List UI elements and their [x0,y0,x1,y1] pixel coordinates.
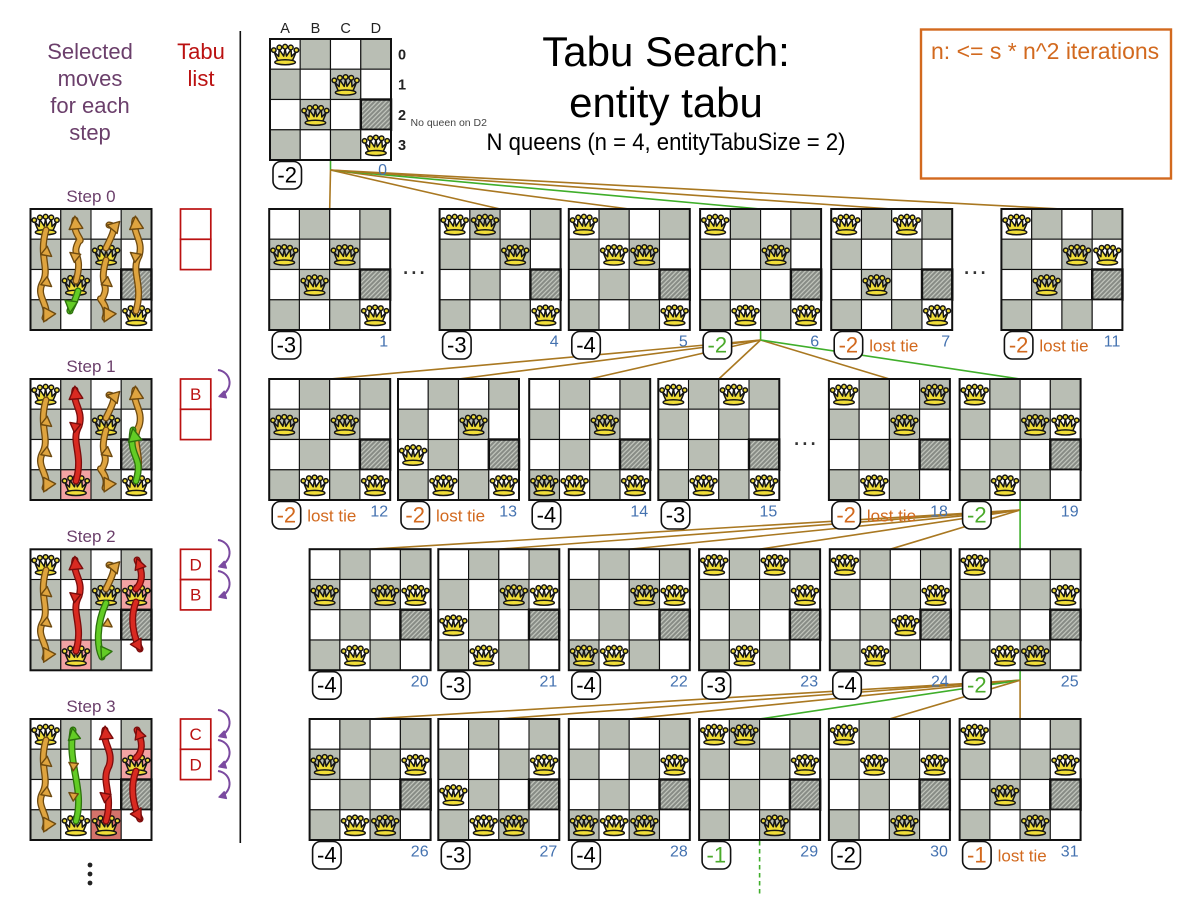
svg-text:25: 25 [1061,674,1079,691]
svg-text:19: 19 [1061,504,1079,521]
svg-text:1: 1 [379,334,388,351]
svg-text:Step 0: Step 0 [66,187,115,206]
svg-text:-3: -3 [277,333,297,358]
svg-text:...: ... [963,250,988,280]
svg-text:-3: -3 [446,843,466,868]
svg-text:-2: -2 [967,503,987,528]
svg-text:-2: -2 [836,843,856,868]
svg-text:-2: -2 [839,333,859,358]
svg-text:31: 31 [1061,844,1079,861]
svg-text:14: 14 [630,504,648,521]
svg-text:28: 28 [670,844,688,861]
svg-text:18: 18 [930,504,948,521]
svg-text:D: D [371,21,381,37]
svg-text:-2: -2 [405,503,425,528]
svg-text:lost tie: lost tie [307,507,356,526]
svg-text:No queen on D2: No queen on D2 [411,117,488,129]
svg-text:lost tie: lost tie [869,337,918,356]
svg-text:29: 29 [800,844,818,861]
svg-text:-2: -2 [836,503,856,528]
svg-text:-2: -2 [1009,333,1029,358]
svg-text:C: C [190,725,202,744]
svg-text:24: 24 [931,674,949,691]
svg-text:26: 26 [411,844,429,861]
svg-text:-4: -4 [537,503,557,528]
svg-text:...: ... [793,421,818,451]
svg-text:list: list [188,66,215,91]
svg-text:-2: -2 [708,333,728,358]
svg-text:1: 1 [398,78,406,94]
svg-text:...: ... [402,250,427,280]
svg-text:lost tie: lost tie [436,507,485,526]
svg-text:N queens (n = 4, entityTabuSiz: N queens (n = 4, entityTabuSize = 2) [487,129,846,156]
svg-text:20: 20 [411,674,429,691]
svg-text:0: 0 [398,47,406,63]
svg-text:n: <= s * n^2 iterations: n: <= s * n^2 iterations [931,38,1159,64]
svg-text:2: 2 [398,108,406,124]
svg-text:-3: -3 [446,673,466,698]
svg-text:for each: for each [50,93,130,118]
svg-text:Step 1: Step 1 [66,357,115,376]
svg-text:Tabu Search:: Tabu Search: [542,28,790,75]
svg-text:Step 3: Step 3 [66,697,115,716]
svg-text:27: 27 [540,844,558,861]
svg-text:-1: -1 [707,843,727,868]
svg-text:-4: -4 [317,673,337,698]
svg-text:-2: -2 [277,503,297,528]
svg-text:7: 7 [941,334,950,351]
svg-text:4: 4 [550,334,559,351]
svg-text:-4: -4 [837,673,857,698]
svg-text:B: B [311,21,321,37]
svg-text:B: B [190,385,201,404]
svg-text:Tabu: Tabu [177,39,225,64]
svg-text:-4: -4 [317,843,337,868]
svg-text:-4: -4 [576,673,596,698]
svg-text:D: D [190,755,202,774]
svg-text:lost tie: lost tie [998,847,1047,866]
svg-text:11: 11 [1104,334,1121,351]
svg-text:-3: -3 [666,503,686,528]
svg-text:Selected: Selected [47,39,133,64]
svg-text:lost tie: lost tie [1039,337,1088,356]
svg-text:-3: -3 [707,673,727,698]
svg-text:3: 3 [398,138,406,154]
svg-text:moves: moves [58,66,123,91]
svg-text:-2: -2 [277,163,297,188]
svg-text:12: 12 [370,504,388,521]
svg-text:-2: -2 [967,673,987,698]
svg-text:-1: -1 [967,843,987,868]
svg-text:C: C [340,21,350,37]
svg-text:30: 30 [930,844,948,861]
svg-text:6: 6 [810,334,819,351]
svg-text:21: 21 [540,674,558,691]
svg-text:5: 5 [679,334,688,351]
svg-text:B: B [190,586,201,605]
svg-text:entity tabu: entity tabu [569,79,763,126]
svg-text:A: A [280,21,290,37]
svg-text:15: 15 [760,504,778,521]
svg-text:-4: -4 [576,333,596,358]
svg-text:-3: -3 [447,333,467,358]
svg-text:Step 2: Step 2 [66,527,115,546]
svg-text:lost tie: lost tie [867,507,916,526]
svg-text:step: step [69,120,111,145]
svg-text:0: 0 [378,162,387,179]
svg-text:23: 23 [800,674,818,691]
svg-text:22: 22 [670,674,688,691]
svg-text:13: 13 [499,504,517,521]
svg-text:-4: -4 [576,843,596,868]
svg-text:D: D [190,555,202,574]
